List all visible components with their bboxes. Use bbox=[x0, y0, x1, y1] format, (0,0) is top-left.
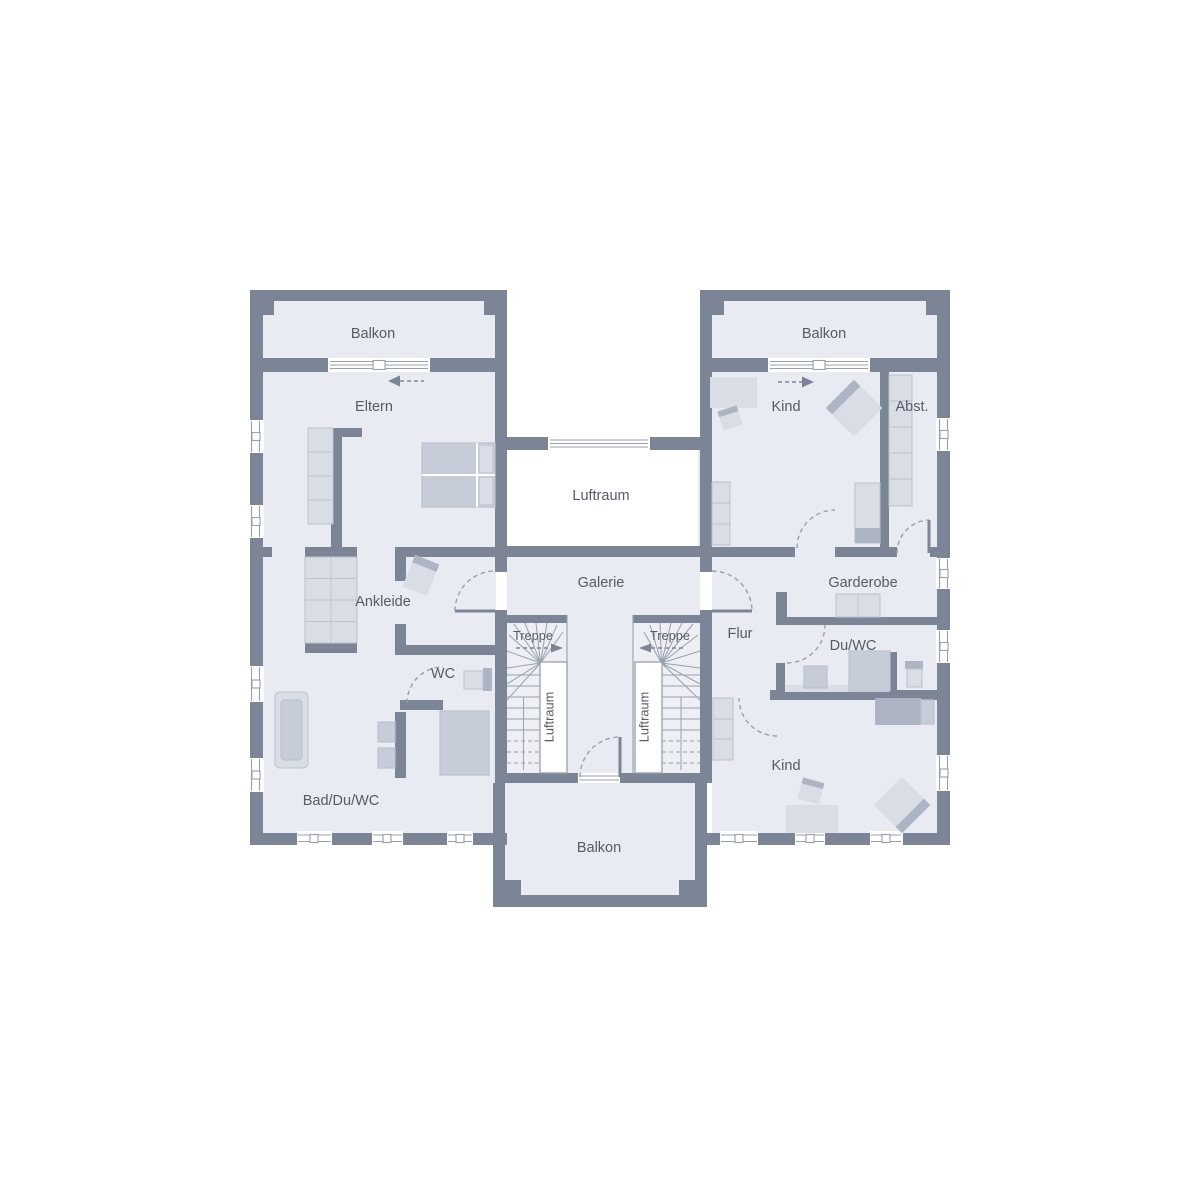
wall-post bbox=[926, 293, 948, 315]
room-label-kind-top: Kind bbox=[771, 399, 800, 415]
room-label-du-wc: Du/WC bbox=[830, 638, 877, 654]
window bbox=[248, 758, 264, 792]
room-label-garderobe: Garderobe bbox=[828, 575, 897, 591]
sliding-door-window bbox=[328, 358, 430, 372]
wall-post bbox=[505, 880, 521, 896]
wall-segment bbox=[495, 773, 578, 783]
wall-segment bbox=[710, 547, 795, 557]
shower bbox=[440, 711, 489, 775]
wall-segment bbox=[495, 610, 507, 783]
wall-segment bbox=[395, 645, 497, 655]
room-label-balkon-bottom: Balkon bbox=[577, 840, 621, 856]
window bbox=[795, 831, 825, 846]
window bbox=[936, 630, 952, 663]
wall-segment bbox=[633, 615, 702, 623]
duwc-shower bbox=[849, 651, 890, 691]
wall-segment bbox=[395, 557, 406, 581]
wall-segment bbox=[250, 547, 272, 557]
room-label-galerie: Galerie bbox=[578, 575, 625, 591]
wall-segment bbox=[305, 643, 357, 653]
wall-segment bbox=[620, 773, 710, 783]
room-label-wc: WC bbox=[431, 666, 455, 682]
window bbox=[248, 505, 264, 538]
window bbox=[248, 420, 264, 453]
window bbox=[248, 666, 264, 702]
door-threshold bbox=[578, 773, 620, 783]
window bbox=[372, 831, 403, 846]
wall-segment bbox=[700, 290, 950, 301]
room-label-kind-bottom: Kind bbox=[771, 758, 800, 774]
pillow bbox=[480, 446, 492, 472]
kind-top-desk bbox=[710, 377, 757, 408]
eltern-cabinet bbox=[308, 428, 333, 524]
wall-segment bbox=[700, 610, 712, 783]
wall-post bbox=[252, 293, 274, 315]
wall-segment bbox=[880, 372, 889, 547]
stair-label: Treppe bbox=[650, 628, 690, 643]
window bbox=[548, 437, 650, 450]
room-label-flur: Flur bbox=[728, 626, 753, 642]
wall-post bbox=[679, 880, 695, 896]
garderobe-cabinet bbox=[836, 594, 880, 617]
window bbox=[936, 558, 952, 589]
stair-label: Treppe bbox=[513, 628, 553, 643]
floor-plan-page: Treppe Luftraum Treppe Luftraum bbox=[0, 0, 1200, 1200]
bathroom-sink bbox=[378, 722, 395, 742]
window bbox=[720, 831, 758, 846]
stair-void-label: Luftraum bbox=[542, 692, 557, 743]
window bbox=[447, 831, 473, 846]
wall-segment bbox=[395, 547, 497, 557]
room-label-balkon-top-right: Balkon bbox=[802, 326, 846, 342]
room-label-balkon-top-left: Balkon bbox=[351, 326, 395, 342]
kind-top-cabinet bbox=[855, 483, 880, 543]
wall-post bbox=[484, 293, 506, 315]
room-label-eltern: Eltern bbox=[355, 399, 393, 415]
window bbox=[936, 418, 952, 451]
wc-toilet bbox=[464, 668, 492, 691]
floor-plan-drawing: Treppe Luftraum Treppe Luftraum bbox=[0, 0, 1200, 1200]
room-label-abstellraum: Abst. bbox=[895, 399, 928, 415]
pillow bbox=[480, 478, 492, 504]
stair-void-label: Luftraum bbox=[637, 692, 652, 743]
wall-segment bbox=[835, 547, 897, 557]
sliding-door-window bbox=[768, 358, 870, 372]
wall-segment bbox=[930, 547, 937, 557]
kind-top-shelf bbox=[712, 482, 730, 545]
bathroom-sink bbox=[378, 748, 395, 768]
wall-segment bbox=[495, 358, 507, 572]
room-label-bad-du-wc: Bad/Du/WC bbox=[303, 793, 380, 809]
eltern-double-bed bbox=[422, 443, 495, 507]
wall-segment bbox=[493, 895, 707, 907]
wall-segment bbox=[776, 617, 937, 625]
wall-segment bbox=[495, 546, 710, 557]
room-label-luftraum: Luftraum bbox=[572, 488, 629, 504]
wall-segment bbox=[493, 783, 505, 907]
kind-bottom-desk bbox=[786, 805, 838, 833]
flur-shelf bbox=[713, 698, 733, 760]
duwc-sink bbox=[804, 666, 827, 688]
room-label-ankleide: Ankleide bbox=[355, 594, 411, 610]
kind-bottom-wardrobe bbox=[875, 698, 934, 725]
duwc-toilet bbox=[905, 661, 923, 687]
wall-segment bbox=[395, 712, 406, 778]
wall-segment bbox=[498, 615, 567, 623]
window bbox=[870, 831, 903, 846]
window bbox=[297, 831, 332, 846]
bathtub bbox=[275, 692, 308, 768]
ankleide-wardrobe bbox=[305, 557, 357, 643]
abst-shelf bbox=[889, 375, 912, 506]
wall-segment bbox=[250, 290, 507, 301]
window bbox=[936, 755, 952, 791]
wall-post bbox=[702, 293, 724, 315]
wall-segment bbox=[305, 547, 357, 557]
